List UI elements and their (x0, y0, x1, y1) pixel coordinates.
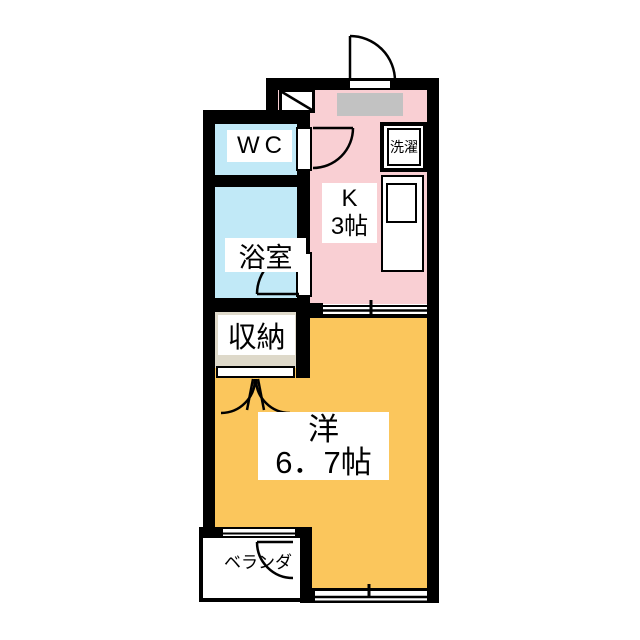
wall-storage-right (296, 312, 310, 378)
wall-right (427, 78, 439, 603)
room-label-bath: 浴室 (225, 238, 306, 272)
entrance-door-arc (350, 36, 395, 81)
room-label-western: 洋 6．7帖 (258, 412, 389, 480)
wall-kitchen-room-divider (297, 303, 323, 318)
room-label-storage: 収納 (218, 315, 295, 355)
veranda-window (223, 527, 295, 538)
bottom-window (315, 588, 427, 603)
kitchen-size-text: 3帖 (331, 213, 368, 241)
western-name-text: 洋 (308, 413, 339, 446)
western-size-text: 6．7帖 (275, 446, 371, 479)
wc-label-text: WC (237, 132, 287, 160)
room-label-veranda: ベランダ (212, 549, 304, 571)
kitchen-sink (386, 183, 417, 223)
kitchen-name-text: K (341, 185, 357, 213)
entrance-corner-cabinet (279, 89, 315, 113)
bath-label-text: 浴室 (239, 236, 293, 275)
room-label-wc: WC (227, 130, 292, 162)
closet-door-sill (216, 366, 295, 378)
veranda-label-text: ベランダ (224, 548, 292, 573)
floor-plan: 洗濯 WC 浴室 K 3帖 収納 (0, 0, 640, 640)
kitchen-sliding-door (323, 304, 427, 318)
laundry-box-inner: 洗濯 (387, 128, 421, 166)
storage-label-text: 収納 (227, 314, 285, 356)
wc-door-opening (296, 127, 312, 171)
room-label-kitchen: K 3帖 (322, 183, 377, 243)
wall-bath-storage-divider (203, 298, 310, 312)
laundry-label: 洗濯 (390, 137, 418, 157)
entrance-door-sill (348, 79, 392, 90)
wall-wc-bath-divider (203, 175, 310, 187)
entry-mat (337, 93, 403, 116)
